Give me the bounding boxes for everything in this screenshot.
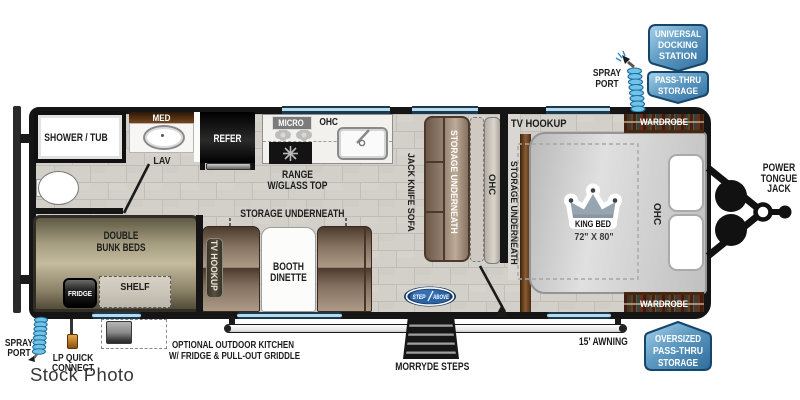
svg-text:KING BED: KING BED: [575, 219, 611, 229]
svg-text:STEP: STEP: [413, 295, 427, 301]
svg-text:STORAGE: STORAGE: [658, 358, 698, 369]
svg-text:ABOVE: ABOVE: [432, 295, 449, 301]
svg-text:UNIVERSAL: UNIVERSAL: [655, 29, 701, 40]
svg-text:PASS-THRU: PASS-THRU: [655, 75, 701, 86]
svg-text:DOCKING: DOCKING: [658, 40, 698, 51]
svg-text:PASS-THRU: PASS-THRU: [653, 346, 703, 357]
svg-text:OVERSIZED: OVERSIZED: [655, 334, 701, 345]
svg-text:STATION: STATION: [659, 51, 697, 62]
svg-text:STORAGE: STORAGE: [658, 86, 698, 97]
